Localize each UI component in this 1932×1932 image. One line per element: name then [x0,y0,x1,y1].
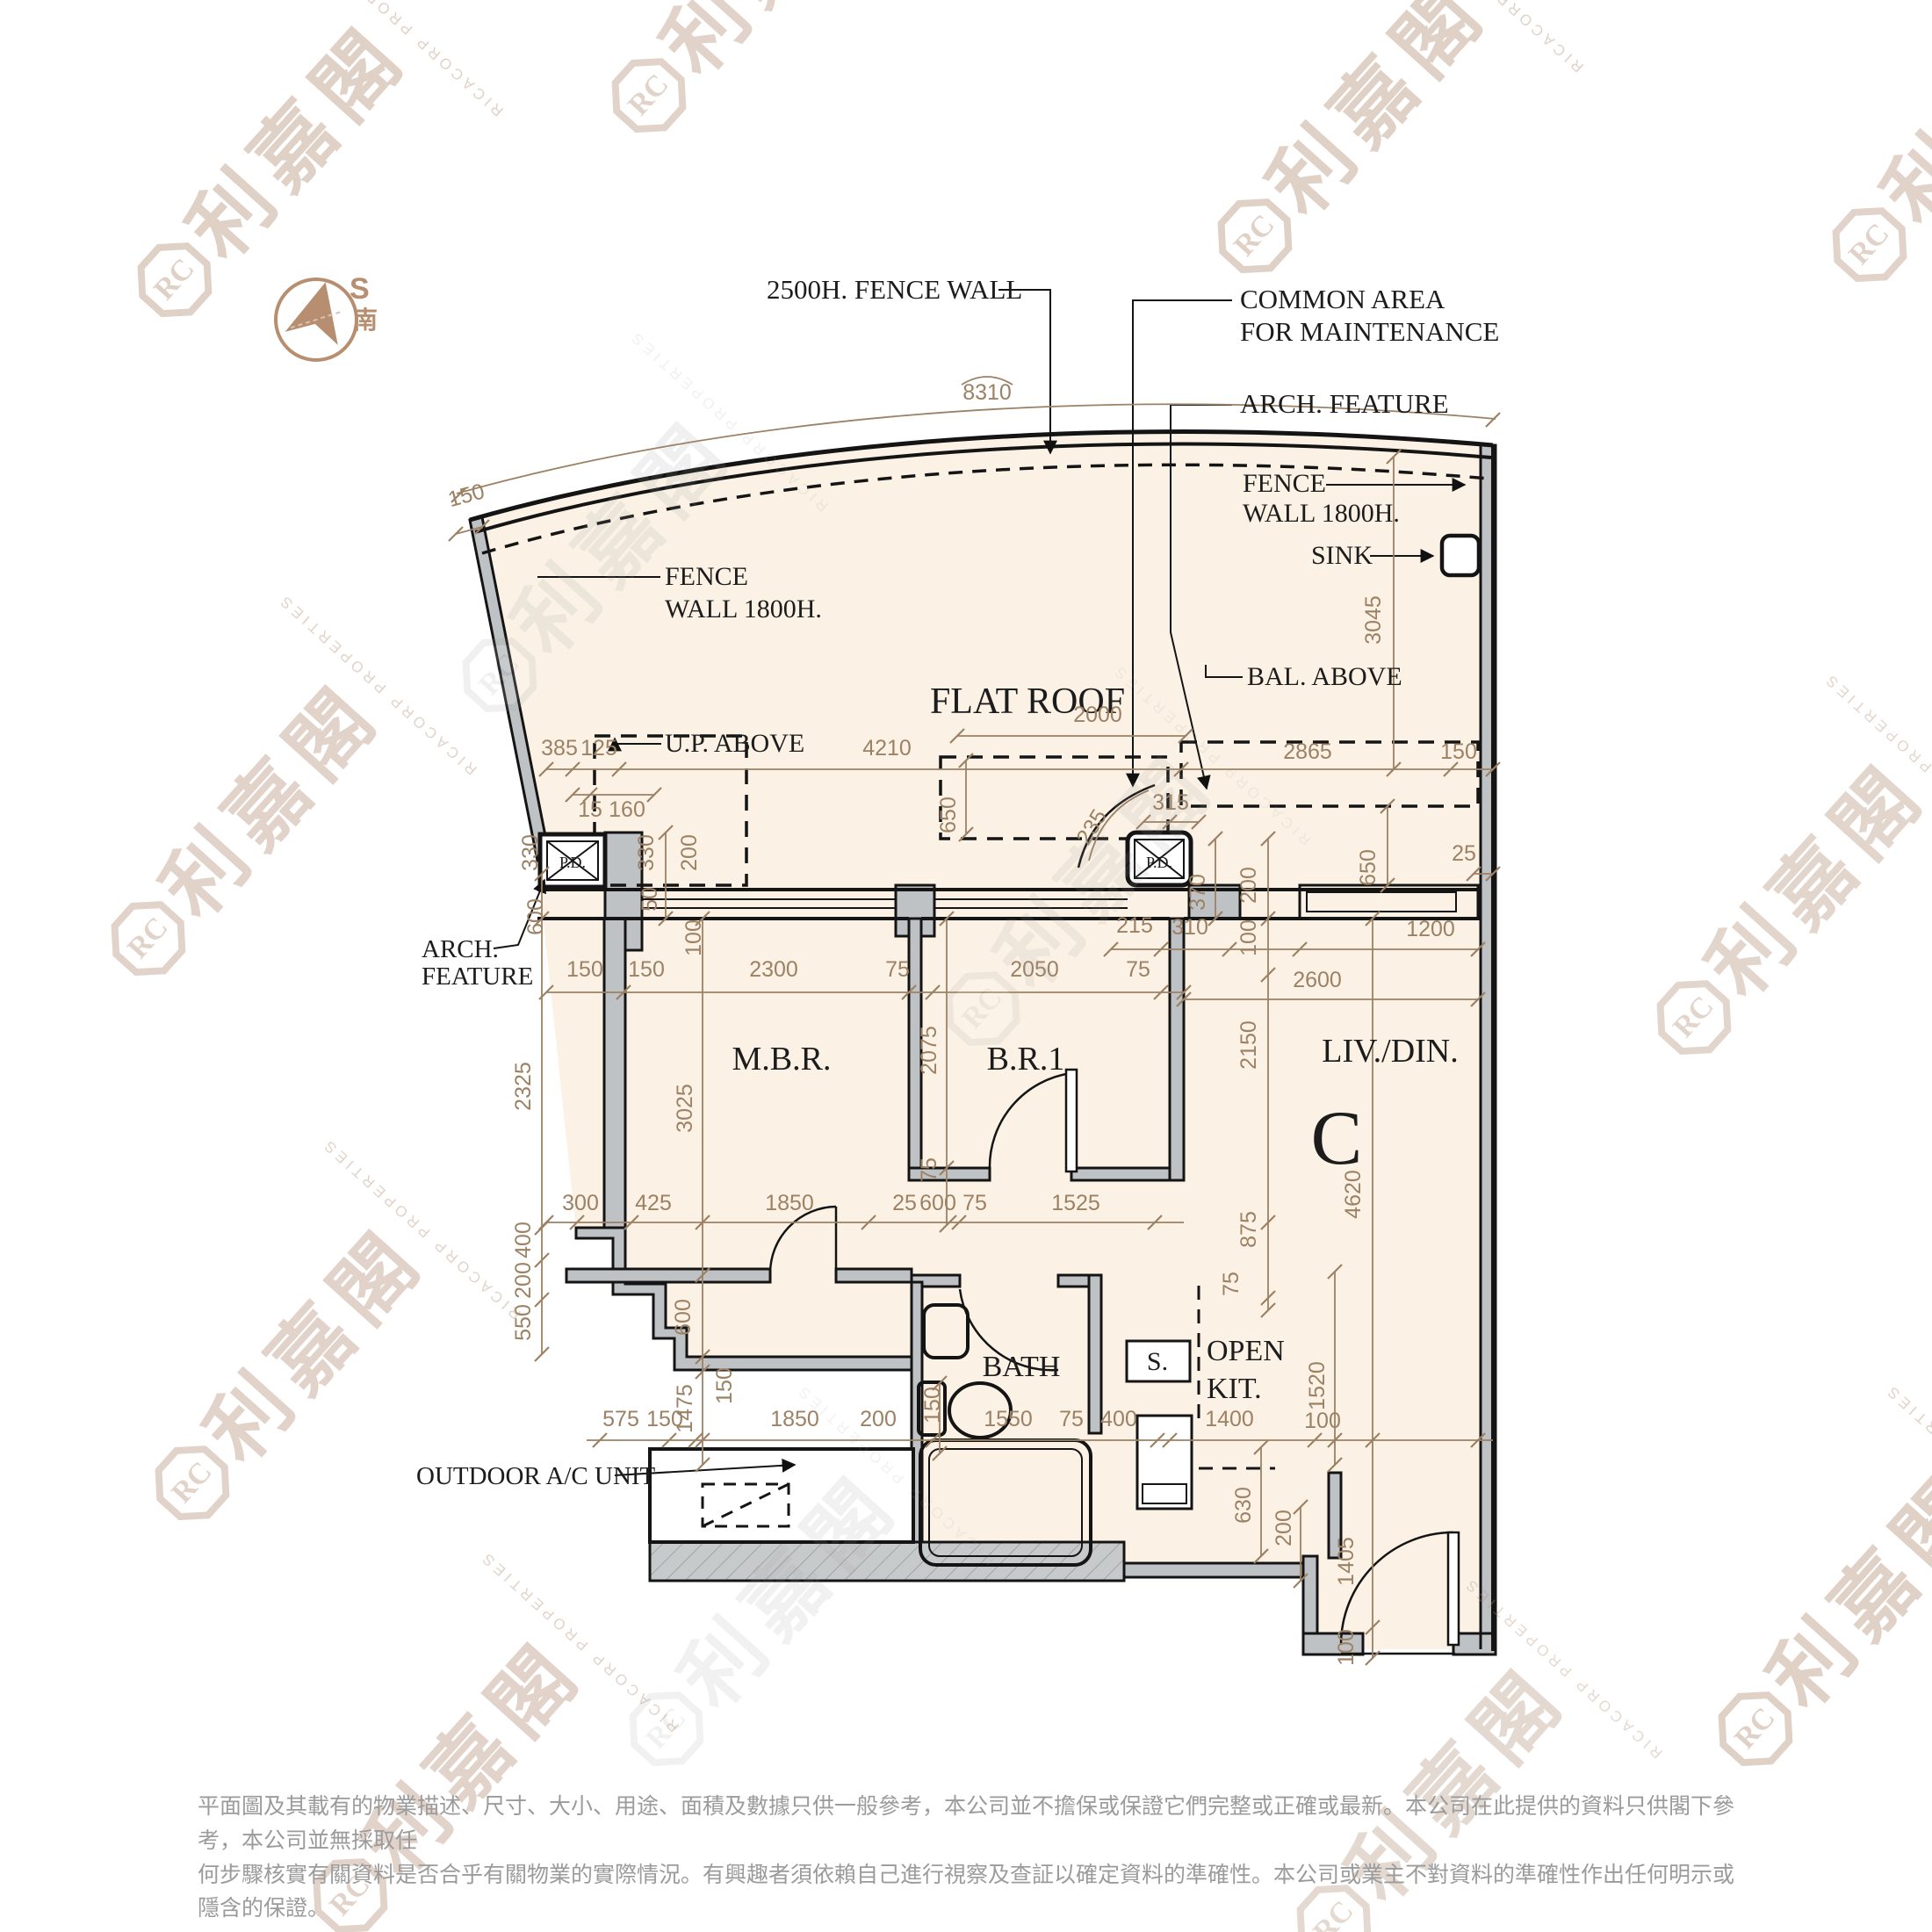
dimension-label: 600 [919,1191,956,1215]
dimension-label: 370 [1186,874,1210,911]
dimension-label: 215 [1116,913,1153,938]
label-2500h-fence-wall: 2500H. FENCE WALL [767,274,1022,305]
dimension-label: 150 [920,1387,945,1424]
label-fence-wall-right-1: FENCE [1243,469,1326,498]
dimension-label: 630 [1231,1487,1256,1524]
dimension-label: 2000 [1073,703,1122,727]
dimension-label: 200 [511,1262,536,1299]
floor-plan-drawing: S 南 2500H. FENCE WALLCOMMON AREAFOR MAIN… [0,0,1932,1932]
dimension-label: 4620 [1341,1170,1366,1219]
label-outdoor-ac: OUTDOOR A/C UNIT [416,1462,656,1490]
dimension-label: 200 [1272,1510,1296,1546]
dimension-label: 1520 [1305,1361,1330,1410]
dimension-label: 300 [562,1191,599,1215]
floor-plan-page: RC 利嘉閣RICACORP PROPERTIES RC 利嘉閣RICACORP… [0,0,1932,1932]
dimension-label: 4210 [862,736,912,761]
dimension-label: 200 [860,1407,897,1431]
dimension-label: 2865 [1283,739,1332,764]
dimension-label: 75 [1219,1272,1244,1296]
dimension-label: 2050 [1010,957,1059,982]
sink-fixture [1442,536,1479,575]
label-sink: SINK [1311,541,1373,570]
dimension-label: 650 [1356,849,1381,886]
label-fence-wall-left-2: WALL 1800H. [665,595,822,624]
label-open-kit-2: KIT. [1207,1373,1262,1405]
dimension-label: 100 [681,919,706,956]
dimension-label: 600 [523,898,548,935]
compass-south-char: 南 [353,306,378,334]
dimension-label: 8310 [962,380,1012,405]
label-up-above: U.P. ABOVE [665,729,804,758]
dimension-label: 315 [1152,790,1189,815]
dimension-label: 385 [541,736,578,761]
dimension-label: 15 [578,797,602,822]
dimension-label: 400 [1100,1407,1137,1431]
label-fence-wall-right-2: WALL 1800H. [1243,499,1400,528]
room-label-br1: B.R.1 [987,1041,1065,1078]
label-arch-feature-left-2: FEATURE [422,962,533,991]
label-s: S. [1147,1347,1168,1376]
dimension-label: 125 [580,736,617,761]
label-pd-left: P.D. [559,854,586,871]
label-common-area-1: COMMON AREA [1240,284,1445,314]
dimension-label: 200 [1236,867,1261,904]
room-label-bath: BATH [983,1351,1061,1383]
dimension-label: 330 [634,834,659,871]
room-label-mbr: M.B.R. [732,1041,832,1078]
dimension-label: 550 [511,1304,536,1341]
disclaimer-chinese-line1: 平面圖及其載有的物業描述、尺寸、大小、用途、面積及數據只供一般參考，本公司並不擔… [198,1790,1752,1858]
dimension-label: 150 [712,1367,737,1404]
dimension-label: 2075 [917,1026,941,1075]
label-fence-wall-left-1: FENCE [665,562,748,591]
dimension-label: 100 [1334,1629,1359,1666]
dimension-label: 650 [936,797,961,833]
dimension-label: 150 [566,957,603,982]
label-open-kit-1: OPEN [1207,1335,1285,1367]
dimension-label: 3045 [1361,595,1386,645]
dimension-label: 75 [885,957,910,982]
dimension-label: 75 [917,1157,941,1182]
dimension-label: 1525 [1051,1191,1100,1215]
dimension-label: 150 [1440,739,1477,764]
room-label-livdin: LIV./DIN. [1322,1033,1459,1070]
compass-south-letter: S [350,272,370,306]
dimension-label: 2300 [749,957,798,982]
dimension-label: 575 [602,1407,639,1431]
dimension-label: 1550 [984,1407,1033,1431]
dimension-label: 875 [1236,1211,1261,1248]
dimension-label: 2600 [1293,968,1342,992]
dimension-label: 330 [518,834,543,871]
dimension-label: 75 [1059,1407,1084,1431]
dimension-label: 150 [646,1407,683,1431]
dimension-label: 1850 [770,1407,819,1431]
dimension-label: 3025 [673,1084,697,1133]
dimension-label: 400 [511,1222,536,1258]
label-pd-right: P.D. [1146,854,1172,871]
dimension-label: 2150 [1236,1020,1261,1070]
dimension-label: 600 [671,1299,696,1336]
dimension-label: 150 [445,479,487,512]
label-arch-feature-top: ARCH. FEATURE [1240,388,1449,419]
label-arch-feature-left-1: ARCH. [422,935,499,963]
dimension-label: 150 [628,957,665,982]
dimension-label: 100 [1304,1409,1341,1433]
dimension-label: 200 [677,834,702,871]
dimension-label: 25 [1452,841,1476,866]
dimension-label: 160 [609,797,645,822]
label-common-area-2: FOR MAINTENANCE [1240,316,1499,347]
dimension-label: 1850 [765,1191,814,1215]
dimension-label: 100 [1236,919,1261,956]
dimension-label: 310 [1171,915,1208,940]
dimension-label: 25 [892,1191,917,1215]
outdoor-ac-unit [650,1449,913,1542]
dimension-label: 2325 [511,1062,536,1111]
dimension-label: 425 [635,1191,672,1215]
dimension-label: 75 [962,1191,987,1215]
dimension-label: 1405 [1334,1537,1359,1586]
label-bal-above: BAL. ABOVE [1247,662,1402,691]
disclaimer-chinese-line2: 何步驟核實有關資料是否合乎有關物業的實際情況。有興趣者須依賴自己進行視察及查証以… [198,1858,1752,1927]
dimension-label: 75 [1126,957,1150,982]
dimension-label: 1200 [1406,917,1455,941]
dimension-label: 50 [638,887,662,912]
dimension-label: 1400 [1205,1407,1254,1431]
disclaimer: 平面圖及其載有的物業描述、尺寸、大小、用途、面積及數據只供一般參考，本公司並不擔… [198,1790,1752,1932]
compass: S 南 [276,272,378,360]
unit-letter: C [1311,1096,1363,1181]
